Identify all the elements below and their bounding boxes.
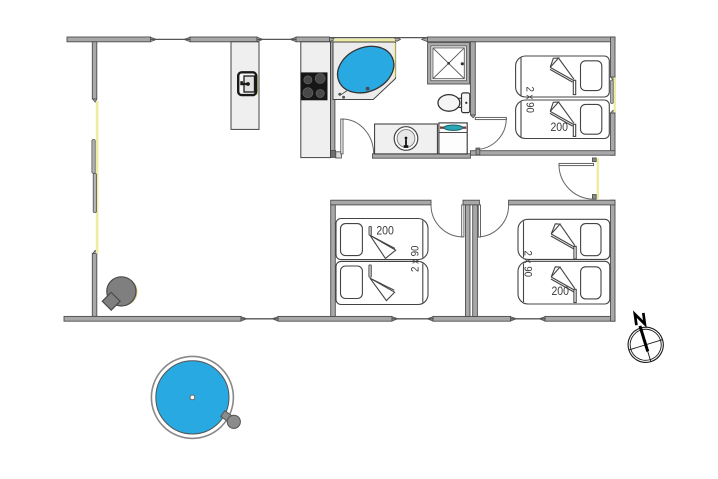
svg-text:200: 200 [376,226,394,238]
svg-text:2 x 90: 2 x 90 [410,246,422,273]
svg-text:2 x 90: 2 x 90 [521,251,533,278]
svg-text:200: 200 [550,122,568,134]
svg-text:200: 200 [551,286,569,298]
svg-text:2 x 90: 2 x 90 [523,86,535,113]
